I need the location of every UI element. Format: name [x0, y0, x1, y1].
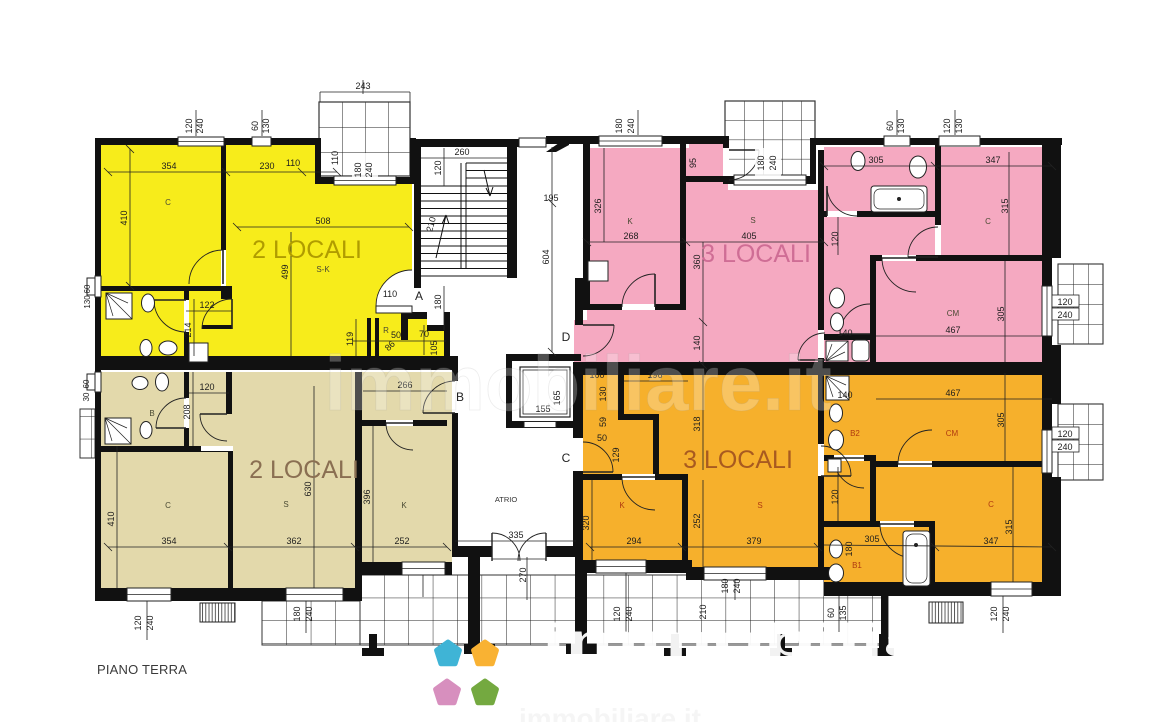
svg-text:294: 294 [626, 536, 641, 546]
svg-text:335: 335 [508, 530, 523, 540]
svg-text:630: 630 [303, 481, 313, 496]
svg-text:140: 140 [837, 390, 852, 400]
svg-text:70: 70 [419, 329, 429, 339]
svg-text:180: 180 [720, 578, 730, 593]
svg-text:467: 467 [945, 325, 960, 335]
svg-text:ATRIO: ATRIO [495, 495, 518, 504]
svg-text:120: 120 [199, 382, 214, 392]
svg-text:C: C [988, 500, 994, 509]
svg-text:B1: B1 [852, 561, 862, 570]
svg-text:240: 240 [304, 606, 314, 621]
svg-text:360: 360 [692, 254, 702, 269]
svg-text:347: 347 [985, 155, 1000, 165]
svg-text:240: 240 [768, 155, 778, 170]
svg-text:CM: CM [946, 429, 959, 438]
svg-text:379: 379 [746, 536, 761, 546]
svg-text:240: 240 [364, 162, 374, 177]
svg-text:95: 95 [688, 158, 698, 168]
svg-text:305: 305 [868, 155, 883, 165]
svg-text:180: 180 [756, 155, 766, 170]
svg-text:CM: CM [947, 309, 960, 318]
svg-text:130: 130 [261, 118, 271, 133]
svg-text:2 LOCALI: 2 LOCALI [252, 236, 362, 264]
svg-text:508: 508 [315, 216, 330, 226]
svg-text:180: 180 [292, 606, 302, 621]
svg-text:315: 315 [1004, 519, 1014, 534]
svg-text:120: 120 [184, 118, 194, 133]
svg-text:C: C [165, 198, 171, 207]
svg-text:243: 243 [355, 81, 370, 91]
svg-text:S: S [757, 501, 762, 510]
svg-text:110: 110 [383, 289, 397, 299]
svg-text:C: C [562, 451, 571, 465]
svg-text:K: K [401, 501, 407, 510]
svg-text:122: 122 [199, 300, 214, 310]
svg-text:240: 240 [145, 615, 155, 630]
svg-text:130: 130 [83, 295, 92, 309]
svg-text:120: 120 [1057, 297, 1072, 307]
svg-text:60: 60 [250, 121, 260, 131]
svg-text:252: 252 [394, 536, 409, 546]
svg-text:362: 362 [286, 536, 301, 546]
svg-text:305: 305 [996, 306, 1006, 321]
svg-text:252: 252 [692, 513, 702, 528]
svg-text:110: 110 [330, 151, 340, 165]
svg-text:S-K: S-K [316, 265, 330, 274]
svg-text:120: 120 [433, 160, 443, 175]
svg-text:120: 120 [830, 489, 840, 504]
svg-text:180: 180 [433, 294, 443, 309]
svg-text:S: S [283, 500, 288, 509]
svg-text:195: 195 [543, 193, 558, 203]
svg-text:120: 120 [830, 231, 840, 246]
svg-text:120: 120 [1057, 429, 1072, 439]
svg-text:240: 240 [626, 118, 636, 133]
svg-text:305: 305 [996, 412, 1006, 427]
svg-text:120: 120 [942, 118, 952, 133]
svg-text:PIANO TERRA: PIANO TERRA [97, 662, 187, 677]
svg-text:60: 60 [83, 284, 92, 293]
svg-text:R: R [383, 326, 389, 335]
svg-text:K: K [619, 501, 625, 510]
svg-text:50: 50 [597, 433, 607, 443]
svg-text:354: 354 [161, 536, 176, 546]
svg-text:405: 405 [741, 231, 756, 241]
svg-text:120: 120 [133, 615, 143, 630]
svg-text:410: 410 [119, 210, 129, 225]
svg-text:A: A [415, 289, 423, 303]
svg-text:326: 326 [593, 198, 603, 213]
svg-text:499: 499 [280, 264, 290, 279]
svg-text:315: 315 [1000, 198, 1010, 213]
svg-text:396: 396 [362, 489, 372, 504]
svg-text:240: 240 [195, 118, 205, 133]
svg-text:270: 270 [518, 567, 528, 582]
svg-text:immobiliare.it: immobiliare.it [519, 703, 701, 722]
svg-text:3 LOCALI: 3 LOCALI [683, 446, 793, 474]
svg-text:110: 110 [286, 158, 300, 168]
svg-text:410: 410 [106, 511, 116, 526]
svg-text:604: 604 [541, 249, 551, 264]
svg-text:3 LOCALI: 3 LOCALI [701, 240, 811, 268]
svg-text:230: 230 [259, 161, 274, 171]
svg-text:180: 180 [353, 162, 363, 177]
svg-text:S: S [750, 216, 755, 225]
svg-text:immobiliare.it: immobiliare.it [324, 339, 831, 427]
svg-text:240: 240 [732, 578, 742, 593]
svg-text:467: 467 [945, 388, 960, 398]
svg-text:C: C [985, 217, 991, 226]
svg-text:240: 240 [1057, 310, 1072, 320]
svg-text:130: 130 [954, 118, 964, 133]
svg-text:305: 305 [864, 534, 879, 544]
svg-text:129: 129 [611, 447, 621, 462]
svg-text:B2: B2 [850, 429, 860, 438]
svg-text:260: 260 [454, 147, 469, 157]
svg-text:180: 180 [844, 541, 854, 556]
svg-text:K: K [627, 217, 633, 226]
svg-text:140: 140 [837, 328, 852, 338]
svg-text:240: 240 [1057, 442, 1072, 452]
svg-text:2 LOCALI: 2 LOCALI [249, 456, 359, 484]
svg-text:C: C [165, 501, 171, 510]
svg-text:347: 347 [983, 536, 998, 546]
svg-text:320: 320 [581, 515, 591, 530]
svg-text:214: 214 [183, 322, 193, 337]
svg-text:208: 208 [182, 404, 192, 419]
svg-text:130: 130 [896, 118, 906, 133]
svg-text:B: B [149, 409, 154, 418]
svg-text:354: 354 [161, 161, 176, 171]
svg-text:60: 60 [885, 121, 895, 131]
svg-text:180: 180 [614, 118, 624, 133]
svg-text:268: 268 [623, 231, 638, 241]
svg-text:immobiliare.it: immobiliare.it [542, 614, 1082, 666]
svg-text:60: 60 [82, 379, 91, 388]
svg-text:30: 30 [82, 392, 91, 401]
